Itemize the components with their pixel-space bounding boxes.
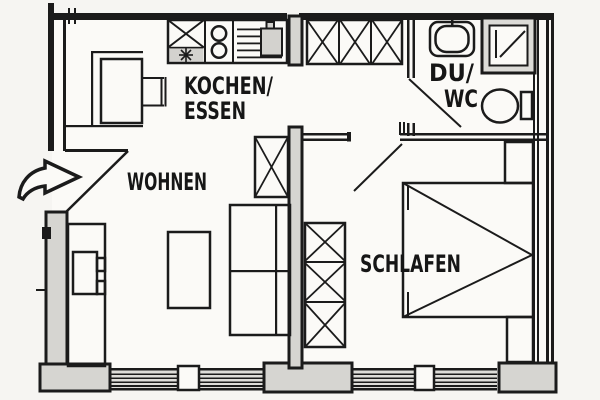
middle-wall-top-stub [289, 16, 302, 65]
top-left-wall-stub [48, 3, 54, 14]
right-wall-outer-1 [546, 13, 549, 369]
hall-wall-line-2 [302, 139, 351, 142]
bath-left-wall-stub-1 [407, 123, 410, 136]
right-wall-outer-2 [551, 13, 554, 369]
bath-left-wall-1 [407, 20, 410, 78]
kitchen-label-line1: KOCHEN/ [184, 72, 273, 100]
bathroom-label-line2: WC [444, 85, 478, 113]
right-footing [499, 363, 556, 392]
bedroom-door-jamb-1 [399, 122, 401, 135]
left-footing [40, 364, 110, 391]
hall-wall-line-1 [302, 133, 351, 136]
left-wall-tick [36, 289, 46, 291]
right-wall-inner-2 [537, 18, 539, 368]
toilet-icon [482, 90, 532, 123]
cistern [521, 92, 532, 119]
dimension-tick-1 [68, 8, 70, 24]
bath-left-wall-2 [413, 20, 416, 78]
window-segment-2 [199, 368, 264, 391]
window-segment-3 [352, 368, 415, 391]
dimension-tick-2 [74, 8, 76, 24]
floor-plan-canvas: KOCHEN/ ESSEN WOHNEN DU/ WC SCHLAFEN [0, 0, 600, 400]
left-wall-upper-inner [63, 20, 66, 151]
left-wall-upper-outer [48, 13, 54, 151]
window-pillar-2 [415, 366, 434, 390]
kitchen-label-line2: ESSEN [184, 97, 246, 125]
dining-table-icon [101, 59, 142, 123]
middle-footing [264, 363, 352, 392]
bath-left-wall-stub-2 [413, 123, 416, 136]
bath-wall-line-2 [400, 139, 546, 142]
left-wall-notch [42, 227, 51, 239]
star-symbol-icon [179, 48, 193, 62]
bedroom-door-jamb-2 [403, 122, 405, 135]
hall-wall-endcap [347, 132, 351, 142]
shower-icon [482, 18, 535, 73]
window-segment-4 [434, 368, 497, 391]
floor-plan-drawing: KOCHEN/ ESSEN WOHNEN DU/ WC SCHLAFEN [0, 0, 600, 400]
bathroom-label-line1: DU/ [429, 59, 474, 87]
living-label: WOHNEN [127, 168, 207, 196]
window-pillar-1 [178, 366, 199, 390]
entrance-door-leaf [65, 149, 128, 152]
window-segment-1 [111, 368, 178, 391]
bedroom-label: SCHLAFEN [360, 250, 461, 278]
bath-wall-line-1 [400, 133, 546, 136]
